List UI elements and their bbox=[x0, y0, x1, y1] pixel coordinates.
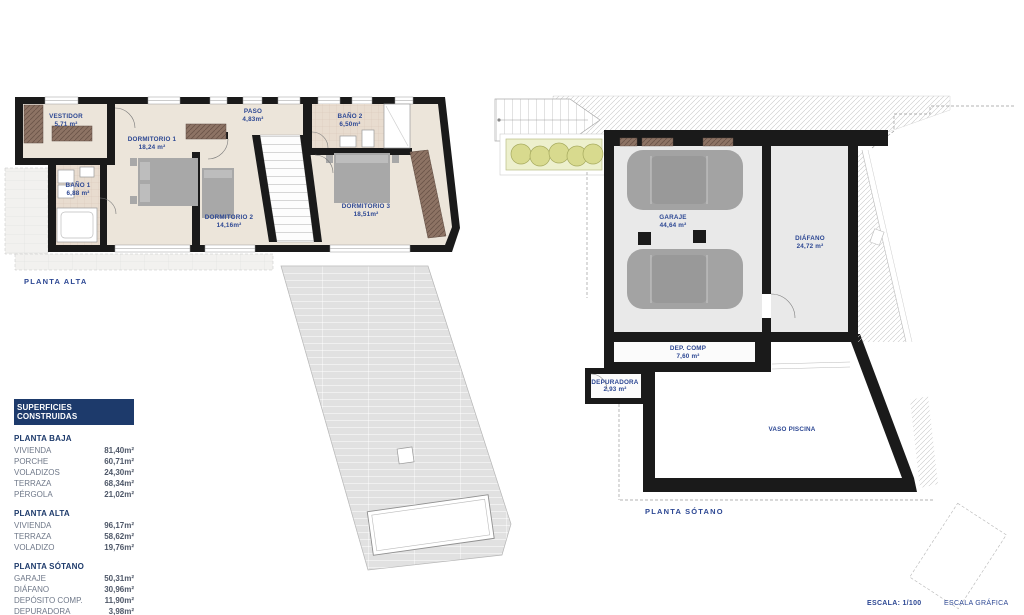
table-row: PÉRGOLA21,02m² bbox=[14, 489, 134, 500]
plan-sotano: GARAJE 44,64 m² DIÁFANO 24,72 m² DEP. CO… bbox=[495, 96, 1014, 609]
table-row: VOLADIZO19,76m² bbox=[14, 542, 134, 553]
table-row: TERRAZA58,62m² bbox=[14, 531, 134, 542]
label-diafano: DIÁFANO bbox=[795, 233, 825, 242]
table-row: DIÁFANO30,96m² bbox=[14, 584, 134, 595]
table-row: VIVIENDA96,17m² bbox=[14, 520, 134, 531]
planter bbox=[500, 134, 608, 175]
label-diafano-area: 24,72 m² bbox=[797, 243, 824, 250]
drawing-sheet: VESTIDOR 5,71 m² DORMITORIO 1 18,24 m² P… bbox=[0, 0, 1024, 615]
label-vestidor-area: 5,71 m² bbox=[54, 121, 77, 128]
surfaces-table: SUPERFICIES CONSTRUIDAS PLANTA BAJA VIVI… bbox=[14, 399, 134, 615]
label-garaje: GARAJE bbox=[659, 214, 686, 221]
toilet bbox=[362, 130, 374, 147]
planter-plants bbox=[511, 143, 603, 166]
label-bano1-area: 6,88 m² bbox=[66, 190, 89, 197]
table-row: VOLADIZOS24,30m² bbox=[14, 467, 134, 478]
label-bano2-area: 6,50m² bbox=[339, 121, 360, 128]
terrace-hatch-square bbox=[397, 447, 414, 464]
label-bano1: BAÑO 1 bbox=[66, 180, 91, 189]
parcel-outline bbox=[910, 503, 1007, 608]
table-section-planta-alta: PLANTA ALTA VIVIENDA96,17m² TERRAZA58,62… bbox=[14, 509, 134, 553]
section-title: PLANTA ALTA bbox=[14, 509, 134, 518]
label-dormitorio3: DORMITORIO 3 bbox=[342, 203, 391, 210]
table-row: GARAJE50,31m² bbox=[14, 573, 134, 584]
section-title: PLANTA BAJA bbox=[14, 434, 134, 443]
table-section-planta-baja: PLANTA BAJA VIVIENDA81,40m² PORCHE60,71m… bbox=[14, 434, 134, 500]
label-vestidor: VESTIDOR bbox=[49, 113, 83, 120]
pillar-2 bbox=[693, 230, 706, 243]
scale-label: ESCALA: 1/100 bbox=[867, 600, 921, 607]
car-2 bbox=[627, 249, 743, 309]
plan-sotano-title: PLANTA SÓTANO bbox=[645, 507, 724, 516]
section-title: PLANTA SÓTANO bbox=[14, 562, 134, 571]
label-paso: PASO bbox=[244, 108, 262, 115]
pillar-1 bbox=[638, 232, 651, 245]
label-dormitorio2: DORMITORIO 2 bbox=[205, 214, 254, 221]
plan-alta-title: PLANTA ALTA bbox=[24, 277, 87, 286]
label-bano2: BAÑO 2 bbox=[338, 111, 363, 120]
label-dep-comp-area: 7,60 m² bbox=[676, 353, 699, 360]
label-garaje-area: 44,64 m² bbox=[660, 222, 687, 229]
label-dep-comp: DEP. COMP bbox=[670, 345, 706, 352]
label-depuradora-area: 2,93 m² bbox=[603, 386, 626, 393]
graphic-scale-label: ESCALA GRÁFICA bbox=[944, 600, 1009, 607]
label-dormitorio3-area: 18,51m² bbox=[354, 211, 379, 218]
floorplan-canvas: VESTIDOR 5,71 m² DORMITORIO 1 18,24 m² P… bbox=[0, 0, 1024, 615]
surfaces-table-header: SUPERFICIES CONSTRUIDAS bbox=[14, 399, 134, 425]
label-paso-area: 4,83m² bbox=[242, 116, 263, 123]
label-dormitorio1-area: 18,24 m² bbox=[139, 144, 166, 151]
table-row: DEPÓSITO COMP.11,90m² bbox=[14, 595, 134, 606]
label-vaso-piscina: VASO PISCINA bbox=[768, 426, 815, 433]
stair-start-dot bbox=[497, 118, 500, 121]
toilet bbox=[80, 167, 94, 177]
sink bbox=[340, 136, 356, 147]
bathtub bbox=[57, 208, 97, 242]
table-section-planta-sotano: PLANTA SÓTANO GARAJE50,31m² DIÁFANO30,96… bbox=[14, 562, 134, 615]
label-dormitorio2-area: 14,16m² bbox=[217, 222, 242, 229]
label-dormitorio1: DORMITORIO 1 bbox=[128, 136, 177, 143]
exterior-paving-left bbox=[5, 168, 48, 254]
table-row: DEPURADORA3,98m² bbox=[14, 606, 134, 615]
table-row: VIVIENDA81,40m² bbox=[14, 445, 134, 456]
label-depuradora: DEPURADORA bbox=[591, 379, 638, 386]
exterior-paving-bottom bbox=[15, 254, 273, 270]
table-row: TERRAZA68,34m² bbox=[14, 478, 134, 489]
car-1 bbox=[627, 150, 743, 210]
table-row: PORCHE60,71m² bbox=[14, 456, 134, 467]
